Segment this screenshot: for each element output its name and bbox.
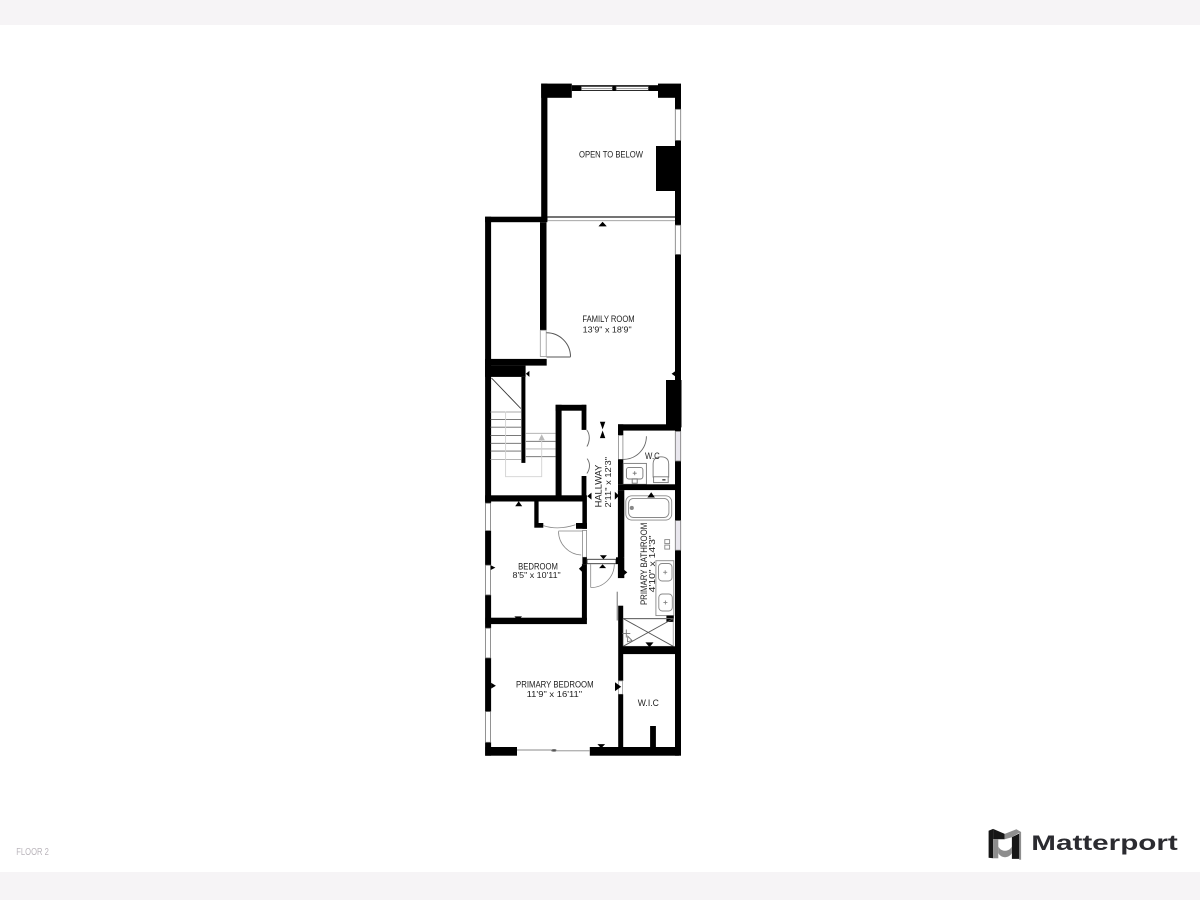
svg-text:11'9" x 16'11": 11'9" x 16'11"	[527, 689, 583, 699]
svg-text:W.C: W.C	[645, 451, 660, 461]
svg-text:8'5" x 10'11": 8'5" x 10'11"	[513, 570, 561, 580]
svg-text:FAMILY ROOM: FAMILY ROOM	[582, 314, 634, 324]
svg-text:Matterport: Matterport	[1031, 832, 1178, 855]
svg-text:PRIMARY BEDROOM: PRIMARY BEDROOM	[516, 680, 594, 690]
svg-text:FLOOR 2: FLOOR 2	[16, 847, 49, 858]
svg-text:13'9" x 18'9": 13'9" x 18'9"	[583, 324, 632, 334]
svg-text:2'11" x 12'3": 2'11" x 12'3"	[603, 457, 613, 508]
svg-text:OPEN TO BELOW: OPEN TO BELOW	[579, 149, 644, 159]
svg-text:W.I.C: W.I.C	[638, 698, 660, 708]
svg-text:4'10" x 14'3": 4'10" x 14'3"	[647, 535, 657, 592]
